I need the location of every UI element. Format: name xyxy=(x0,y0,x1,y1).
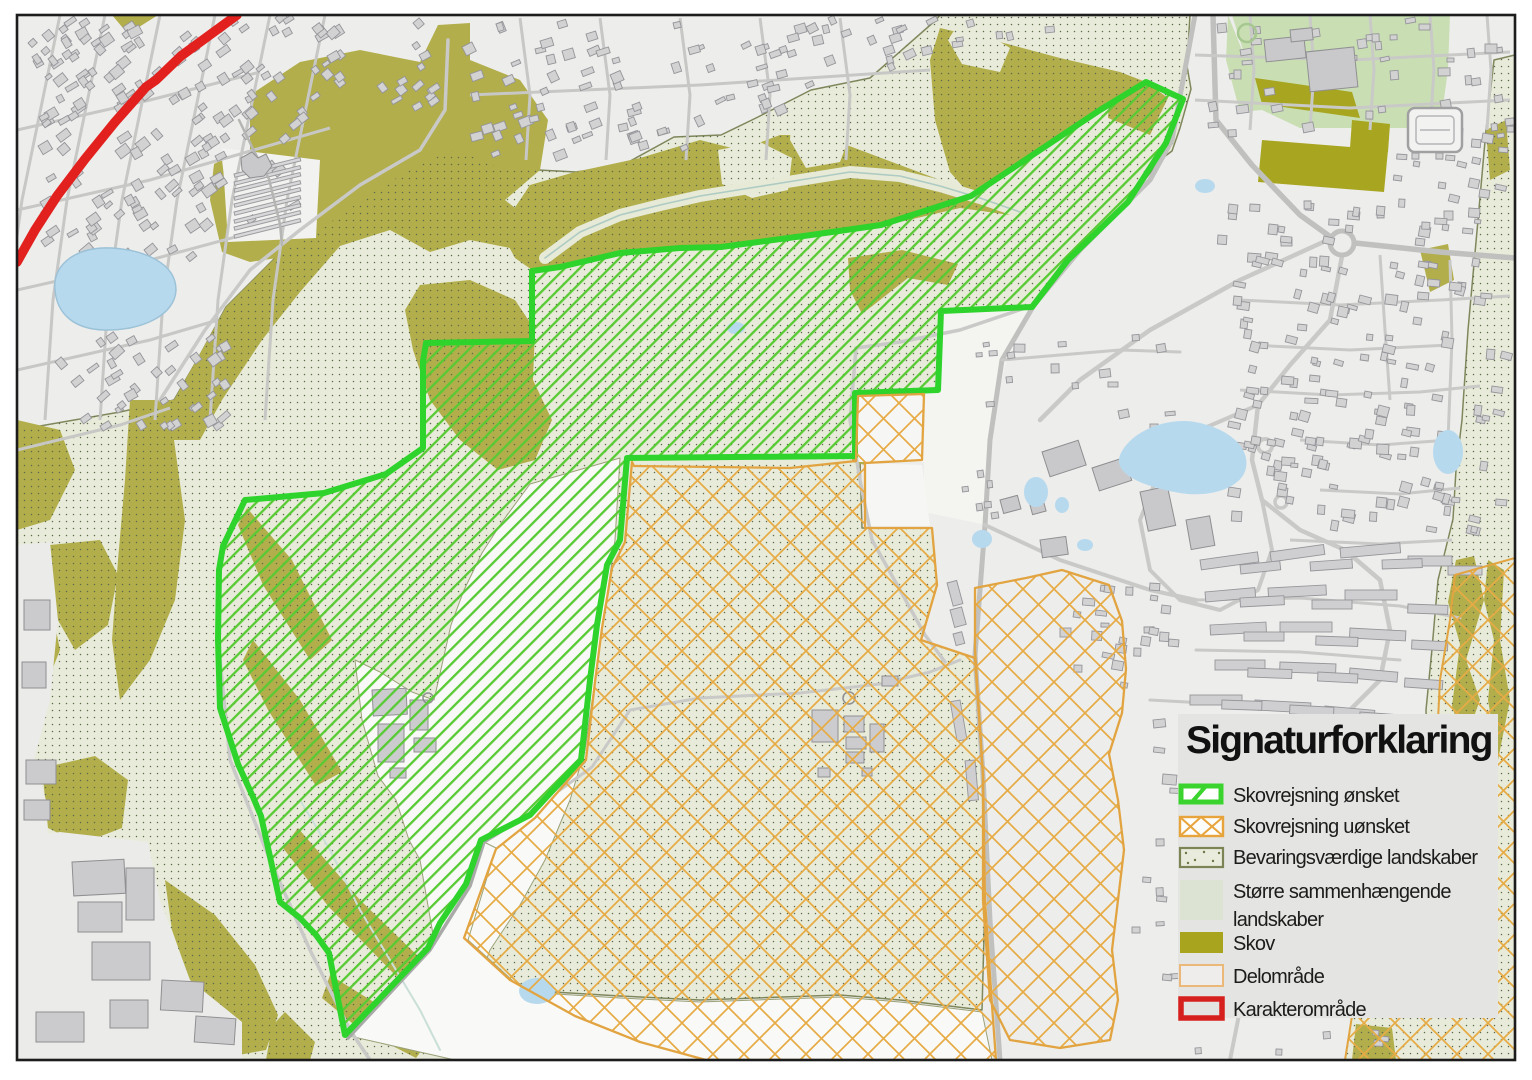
svg-text:Skovrejsning uønsket: Skovrejsning uønsket xyxy=(1233,816,1410,838)
svg-text:Bevaringsværdige landskaber: Bevaringsværdige landskaber xyxy=(1233,847,1478,869)
svg-text:Delområde: Delområde xyxy=(1233,966,1325,988)
svg-text:Signaturforklaring: Signaturforklaring xyxy=(1186,719,1492,762)
svg-text:Karakterområde: Karakterområde xyxy=(1233,999,1367,1021)
svg-text:Skovrejsning ønsket: Skovrejsning ønsket xyxy=(1233,785,1400,807)
svg-text:Skov: Skov xyxy=(1233,933,1275,955)
svg-text:Større sammenhængende: Større sammenhængende xyxy=(1233,881,1451,903)
svg-text:landskaber: landskaber xyxy=(1233,909,1324,931)
